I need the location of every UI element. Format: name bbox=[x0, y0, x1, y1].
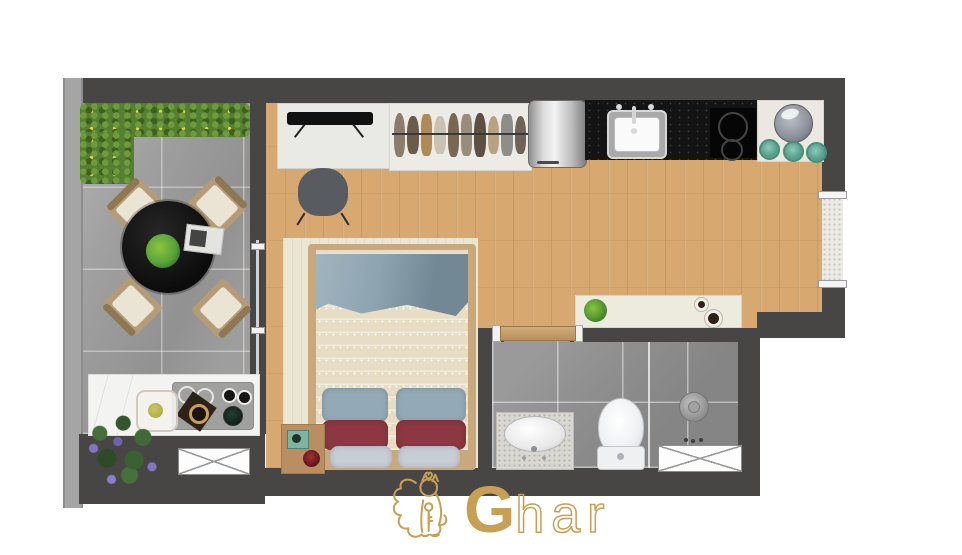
faucet-spout bbox=[631, 128, 637, 134]
magazine bbox=[183, 224, 224, 255]
wall-bed-bath-divider bbox=[478, 328, 492, 470]
teal-bowl bbox=[783, 141, 804, 162]
table-plant bbox=[146, 234, 180, 268]
clothing-item bbox=[448, 113, 459, 157]
wall-right-upper bbox=[822, 78, 845, 197]
window-marker bbox=[658, 445, 742, 472]
coffee-cup bbox=[704, 309, 723, 328]
pillow-gray bbox=[330, 446, 392, 468]
nightstand-tray bbox=[287, 430, 309, 449]
desk-chair bbox=[298, 168, 348, 216]
burner-icon bbox=[721, 139, 743, 161]
bathroom-door bbox=[500, 326, 576, 341]
wall-step bbox=[757, 312, 845, 338]
shower-control bbox=[691, 439, 695, 443]
clothing-item bbox=[515, 116, 526, 154]
throw-blanket bbox=[316, 254, 468, 316]
shower-head bbox=[679, 392, 709, 422]
coffee-cup bbox=[222, 388, 237, 403]
cooking-pot bbox=[774, 104, 813, 143]
entrance-opening bbox=[822, 197, 843, 281]
logo-initial: G bbox=[464, 478, 515, 540]
faucet-knob bbox=[648, 104, 654, 110]
sink-knob bbox=[522, 456, 526, 460]
shower-arm bbox=[692, 419, 694, 439]
clothing-item bbox=[461, 114, 472, 156]
logo-text: G har bbox=[464, 470, 612, 542]
sink-knob bbox=[542, 456, 546, 460]
flower-bush bbox=[80, 408, 170, 492]
shelf-plant bbox=[584, 299, 607, 322]
faucet-icon bbox=[632, 106, 636, 124]
refrigerator bbox=[528, 100, 587, 168]
clothing-item bbox=[407, 116, 418, 154]
pillow-blue bbox=[396, 388, 466, 422]
door-handle-icon bbox=[251, 243, 265, 250]
logo-rest: har bbox=[515, 488, 611, 542]
pillow-gray bbox=[398, 446, 460, 468]
flower-pot bbox=[303, 450, 320, 467]
clothing-item bbox=[421, 114, 432, 156]
window-marker bbox=[178, 448, 250, 475]
shower-glass-divider bbox=[648, 338, 650, 468]
clothing-item bbox=[434, 116, 445, 154]
entrance-threshold bbox=[818, 191, 847, 199]
clothing-item bbox=[394, 113, 405, 157]
shower-control bbox=[699, 438, 703, 442]
shower-control bbox=[684, 438, 688, 442]
entrance-threshold bbox=[818, 280, 847, 288]
donut bbox=[189, 404, 209, 424]
clothing-item bbox=[501, 114, 512, 156]
teal-bowl bbox=[759, 139, 780, 160]
tv bbox=[287, 112, 373, 125]
faucet-knob bbox=[616, 104, 622, 110]
coffee-cup bbox=[694, 297, 709, 312]
hanging-clothes bbox=[394, 112, 526, 158]
hedge-planter bbox=[80, 132, 134, 184]
kitchen-sink bbox=[607, 110, 667, 159]
clothes-rail bbox=[392, 133, 528, 135]
bowl bbox=[223, 406, 243, 426]
lion-with-key-icon bbox=[388, 470, 462, 544]
burner-icon bbox=[718, 112, 748, 142]
brand-logo: G har bbox=[388, 470, 668, 550]
floor-plan: G har bbox=[0, 0, 962, 555]
coffee-cup bbox=[237, 390, 252, 405]
sink-faucet bbox=[531, 446, 537, 452]
teal-bowl bbox=[806, 142, 827, 163]
clothing-item bbox=[488, 116, 499, 154]
wall-bathroom-top-right bbox=[570, 328, 760, 342]
door-handle-icon bbox=[251, 327, 265, 334]
clothing-item bbox=[474, 113, 485, 157]
toilet-flush-button bbox=[617, 453, 624, 460]
pillow-blue bbox=[322, 388, 388, 422]
